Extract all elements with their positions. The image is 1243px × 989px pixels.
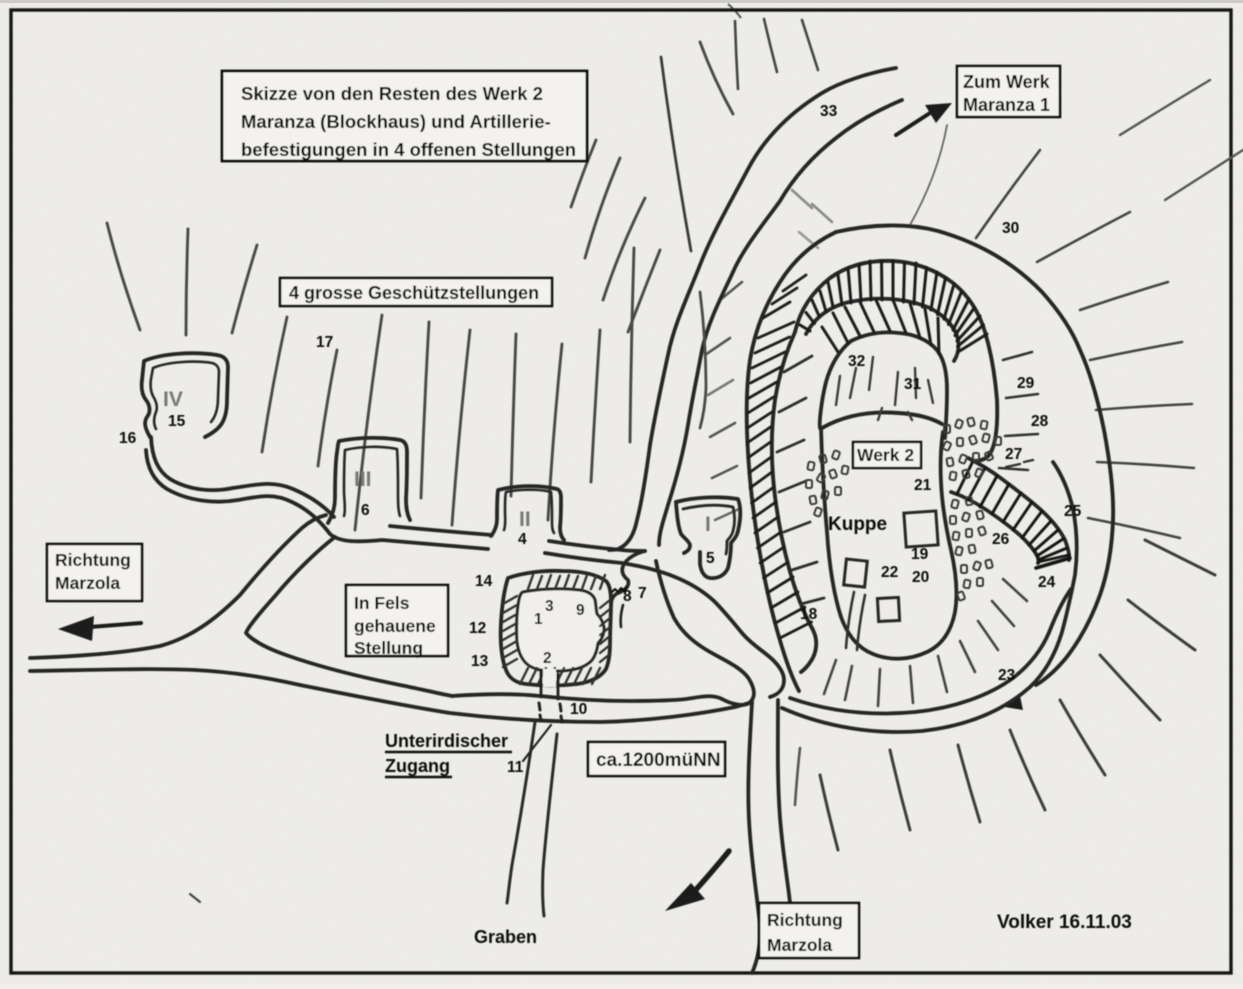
svg-text:13: 13 [471,653,489,670]
svg-text:25: 25 [1064,503,1082,520]
svg-text:32: 32 [848,353,865,370]
svg-text:IV: IV [163,388,183,411]
svg-text:21: 21 [914,477,932,494]
svg-text:gehauene: gehauene [354,616,436,636]
svg-text:I: I [705,513,711,536]
svg-text:29: 29 [1017,375,1035,392]
svg-text:12: 12 [469,620,486,637]
svg-text:Graben: Graben [474,927,537,947]
svg-text:15: 15 [168,413,186,430]
svg-text:In Fels: In Fels [354,593,410,613]
svg-text:Marzola: Marzola [55,573,120,593]
svg-text:30: 30 [1002,220,1019,237]
svg-text:20: 20 [912,569,929,586]
svg-text:6: 6 [361,502,370,519]
svg-text:28: 28 [1031,413,1049,430]
svg-text:Richtung: Richtung [55,550,131,570]
svg-text:14: 14 [475,573,493,590]
svg-text:23: 23 [998,667,1016,684]
svg-text:9: 9 [576,602,585,619]
svg-text:Maranza (Blockhaus) und Artill: Maranza (Blockhaus) und Artillerie- [241,111,551,132]
svg-text:Richtung: Richtung [767,910,843,930]
svg-text:II: II [519,508,531,531]
svg-text:4: 4 [518,531,527,548]
svg-text:Maranza 1: Maranza 1 [963,95,1050,115]
svg-text:Stellung: Stellung [354,638,423,658]
svg-text:27: 27 [1005,446,1022,463]
svg-text:Unterirdischer: Unterirdischer [385,731,508,751]
svg-text:17: 17 [316,334,333,351]
svg-text:24: 24 [1038,574,1056,591]
svg-text:26: 26 [992,531,1010,548]
svg-text:Volker 16.11.03: Volker 16.11.03 [997,912,1132,933]
svg-text:18: 18 [800,606,818,623]
svg-text:III: III [354,468,372,491]
svg-text:ca.1200müNN: ca.1200müNN [596,750,721,771]
svg-text:5: 5 [706,550,715,567]
svg-text:Skizze von den Resten des Werk: Skizze von den Resten des Werk 2 [241,83,543,104]
svg-text:3: 3 [545,598,554,615]
svg-text:1: 1 [534,611,543,628]
svg-text:10: 10 [570,701,587,718]
svg-text:19: 19 [911,546,929,563]
svg-text:Marzola: Marzola [767,935,832,955]
svg-text:16: 16 [119,430,137,447]
svg-text:Werk 2: Werk 2 [857,445,914,465]
svg-text:Zum Werk: Zum Werk [963,72,1051,92]
svg-text:11: 11 [507,759,524,776]
svg-text:4 grosse Geschützstellungen: 4 grosse Geschützstellungen [289,283,539,303]
svg-text:befestigungen in 4 offenen Ste: befestigungen in 4 offenen Stellungen [241,139,576,160]
svg-text:8: 8 [623,588,632,605]
svg-text:2: 2 [543,650,552,667]
svg-text:22: 22 [881,564,898,581]
svg-text:7: 7 [638,585,647,602]
svg-text:33: 33 [820,103,838,120]
svg-text:Zugang: Zugang [385,756,450,776]
svg-text:Kuppe: Kuppe [828,514,887,535]
svg-text:31: 31 [904,376,922,393]
